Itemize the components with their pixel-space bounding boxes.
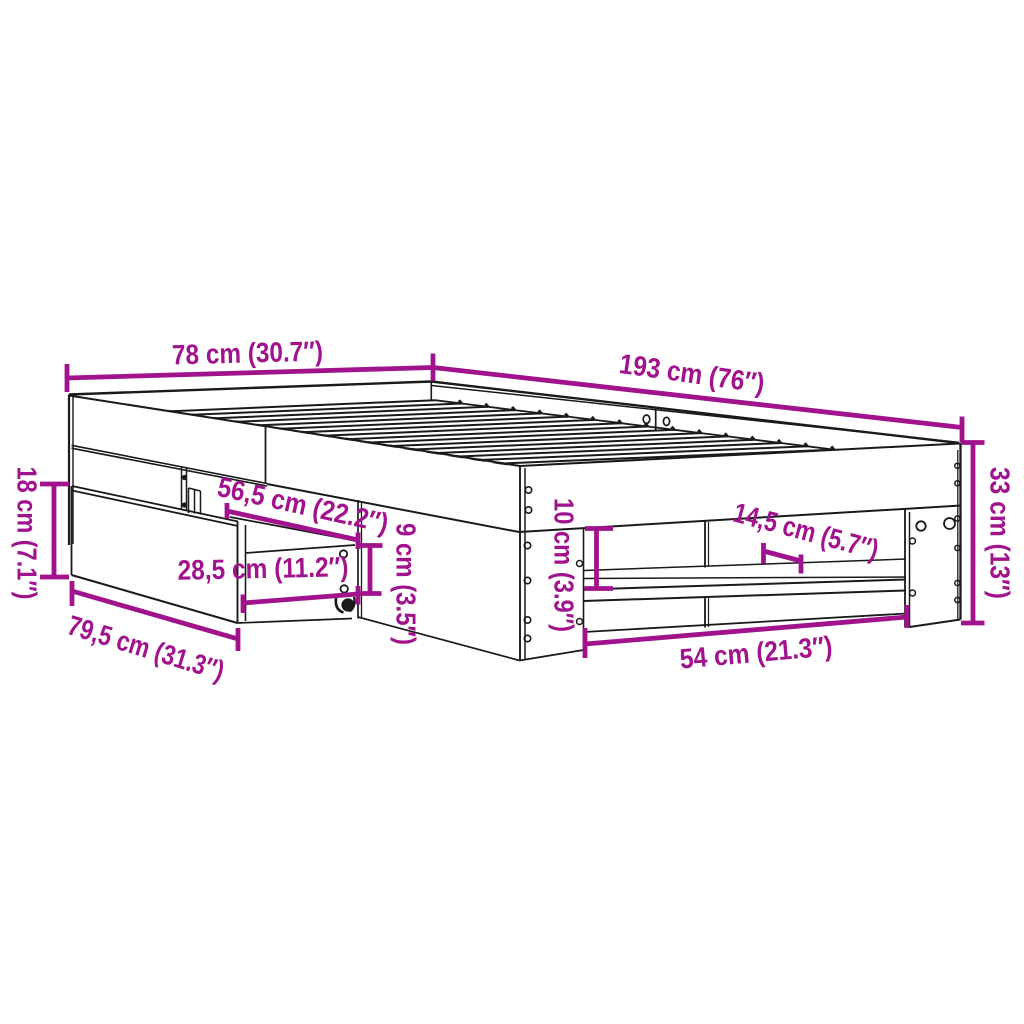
svg-text:78 cm (30.7″): 78 cm (30.7″) <box>172 336 324 371</box>
svg-text:33 cm (13″): 33 cm (13″) <box>985 467 1016 599</box>
svg-text:10 cm (3.9″): 10 cm (3.9″) <box>549 498 580 632</box>
svg-text:9 cm (3.5″): 9 cm (3.5″) <box>391 523 422 645</box>
svg-text:18 cm (7.1″): 18 cm (7.1″) <box>12 467 43 600</box>
svg-text:28,5 cm (11.2″): 28,5 cm (11.2″) <box>177 551 349 586</box>
